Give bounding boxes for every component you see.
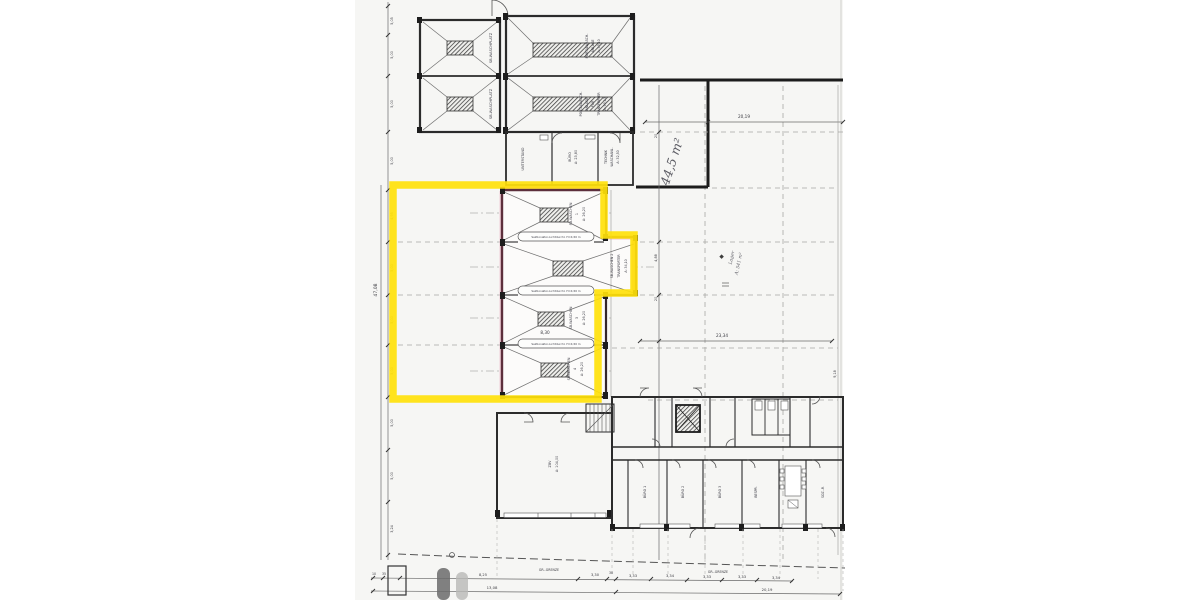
label-bay4-1: 4 [573,368,577,370]
label-bay1-0: SB-WASCHEN [569,202,573,225]
chain1-9: 3,34 [772,576,781,580]
dim-23-34: 23,34 [716,333,728,338]
gate-note-3: Sektionaltor-Lichtdurchl. H=4,50 m [531,342,581,346]
scanned-floorplan-page: 20,19 23,34 20 4,88 20 9,18 5,05 [0,0,1200,600]
chain1-7: 3,33 [703,575,711,579]
label-portal2-4: A: 59,10 [603,97,607,110]
scan-smudge-dark [437,568,450,600]
label-zbv-0: ZBV [548,460,552,468]
label-office-2: BÜRO 3 [717,486,722,498]
chain1-4: 30 [609,571,613,575]
label-office-0: BÜRO 1 [642,486,647,498]
label-technik-1: WASCHANL. [610,147,614,166]
label-bay4-2: A: 26,20 [580,362,584,376]
left-tick-8: 5,00 [390,419,394,427]
label-portal1-0: PORTALWASCH- [585,34,589,59]
dim-8-30: 8,30 [540,330,550,335]
label-portal2-0: PORTALWASCH- [579,92,583,117]
chain2-1: 20,19 [762,587,773,592]
gate-note-1: Sektionaltor-Lichtdurchl. H=4,50 m [531,235,581,239]
label-bay2-1: TRANSPORTER [617,254,621,279]
gate-note-2: Sektionaltor-Lichtdurchl. H=4,50 m [531,289,581,293]
label-bay1-1: 1 [575,213,579,215]
label-portal2-1: ANLAGE [585,97,589,110]
label-bay2-2: A: 34,10 [624,259,628,272]
chain2-0: 13,08 [487,585,498,590]
left-tick-10: 3,24 [390,525,394,533]
chain1-0: 10 [372,572,376,576]
dim-right-1: 4,88 [654,254,658,262]
label-unterstand: UNTERSTAND [521,147,525,170]
label-zbv-1: A: 104,00 [555,456,559,472]
label-buero-0: BÜRO [567,152,572,162]
chain1-8: 3,33 [738,575,746,579]
grenze-label-right: GR.-GRENZE [708,570,728,574]
label-office-3: BESPR. [754,486,758,497]
left-tick-3: 5,00 [390,157,394,165]
chain1-3: 3,30 [591,573,600,577]
label-waschplatz-1: SB-WASCHPLATZ [489,32,493,63]
chain1-5: 3,33 [629,574,637,578]
scan-smudge-light [456,572,468,600]
label-portal1-1: ANLAGE [591,39,595,52]
label-bay3-1: 3 [575,317,579,319]
chain1-6: 3,34 [666,574,675,578]
left-tick-1: 5,00 [390,51,394,59]
dim-20-19-top: 20,19 [738,114,750,119]
label-portal1-2: A: 59,10 [597,39,601,52]
grenze-label-left: GR.-GRENZE [539,568,559,572]
label-bay1-2: A: 26,20 [582,207,586,221]
label-bay3-2: A: 26,20 [582,311,586,325]
dim-47-08: 47,08 [373,283,379,296]
label-office-4: SOZ.-R. [821,486,825,498]
label-buero-1: A: 23,80 [574,150,578,164]
label-portal2-2: FÜR [590,100,595,107]
label-bay3-0: SB-WASCHEN [569,306,573,329]
dim-right-0: 20 [654,134,658,138]
floorplan-svg: 20,19 23,34 20 4,88 20 9,18 5,05 [0,0,1200,600]
dim-right-2: 20 [654,297,658,301]
chain1-2: 8,25 [479,573,487,577]
left-tick-9: 5,00 [390,472,394,480]
dim-9-18: 9,18 [833,370,837,378]
left-tick-0: 5,05 [390,17,394,25]
label-office-1: BÜRO 2 [680,486,685,498]
label-technik-0: TECHNIK [604,149,608,165]
label-technik-2: A: 32,50 [616,150,620,163]
label-bay4-0: SB-WASCHEN [567,357,571,380]
label-waschplatz-2: SB-WASCHPLATZ [489,88,493,119]
chain1-1: 35 [382,572,386,576]
left-tick-2: 5,00 [390,100,394,108]
label-portal2-3: TRANSPORTER [597,92,601,117]
label-bay2-0: SB-WASCHEN 2 [610,254,614,278]
